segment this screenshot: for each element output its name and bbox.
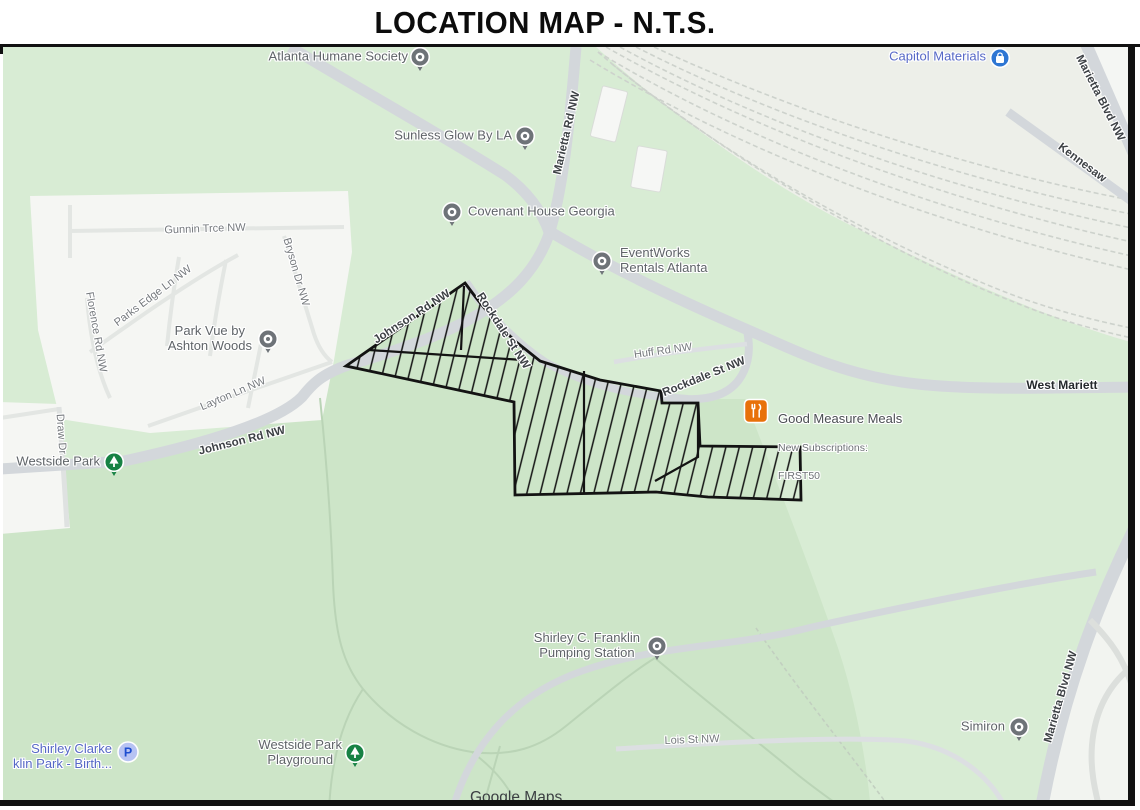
- poi-label-westside-playground[interactable]: Westside Park Playground: [258, 738, 342, 768]
- place-icon[interactable]: [1008, 716, 1030, 742]
- poi-label-simiron[interactable]: Simiron: [961, 720, 1005, 735]
- page-title: LOCATION MAP - N.T.S.: [27, 5, 1063, 41]
- place-icon[interactable]: [514, 125, 536, 151]
- place-icon[interactable]: [409, 46, 431, 72]
- poi-label-shirley-clarke-park[interactable]: Shirley Clarke klin Park - Birth...: [13, 742, 112, 772]
- poi-label-park-vue[interactable]: Park Vue by Ashton Woods: [168, 324, 252, 354]
- restaurant-icon[interactable]: [743, 398, 769, 424]
- place-icon[interactable]: [591, 250, 613, 276]
- poi-promo-code: FIRST50: [778, 470, 902, 483]
- map-frame-left: [0, 44, 3, 54]
- poi-subtitle: New Subscriptions:: [778, 442, 902, 455]
- map-frame-top: [0, 44, 1140, 47]
- poi-label-good-measure-meals[interactable]: Good Measure Meals New Subscriptions: FI…: [778, 397, 902, 498]
- street-label-west-marietta: West Mariett: [1026, 378, 1097, 392]
- park-tree-icon[interactable]: [103, 451, 125, 477]
- parking-icon[interactable]: P: [116, 740, 140, 764]
- shopping-bag-icon[interactable]: [989, 47, 1011, 69]
- poi-label-sunless-glow[interactable]: Sunless Glow By LA: [394, 129, 512, 144]
- map-frame-right: [1128, 44, 1135, 806]
- poi-label-westside-park[interactable]: Westside Park: [16, 455, 100, 470]
- park-tree-icon[interactable]: [344, 742, 366, 768]
- place-icon[interactable]: [257, 328, 279, 354]
- poi-label-atlanta-humane-society[interactable]: Atlanta Humane Society: [269, 50, 408, 65]
- place-icon[interactable]: [646, 635, 668, 661]
- poi-label-capitol-materials[interactable]: Capitol Materials: [889, 50, 986, 65]
- poi-label-covenant-house[interactable]: Covenant House Georgia: [468, 205, 615, 220]
- svg-text:P: P: [124, 746, 132, 760]
- poi-label-pumping-station[interactable]: Shirley C. Franklin Pumping Station: [534, 631, 640, 661]
- place-icon[interactable]: [441, 201, 463, 227]
- map-frame-bottom: [0, 800, 1135, 806]
- location-map-page: LOCATION MAP - N.T.S.: [0, 0, 1140, 810]
- poi-name[interactable]: Good Measure Meals: [778, 412, 902, 427]
- poi-label-eventworks[interactable]: EventWorks Rentals Atlanta: [620, 246, 707, 276]
- street-label-lois-st: Lois St NW: [664, 733, 719, 747]
